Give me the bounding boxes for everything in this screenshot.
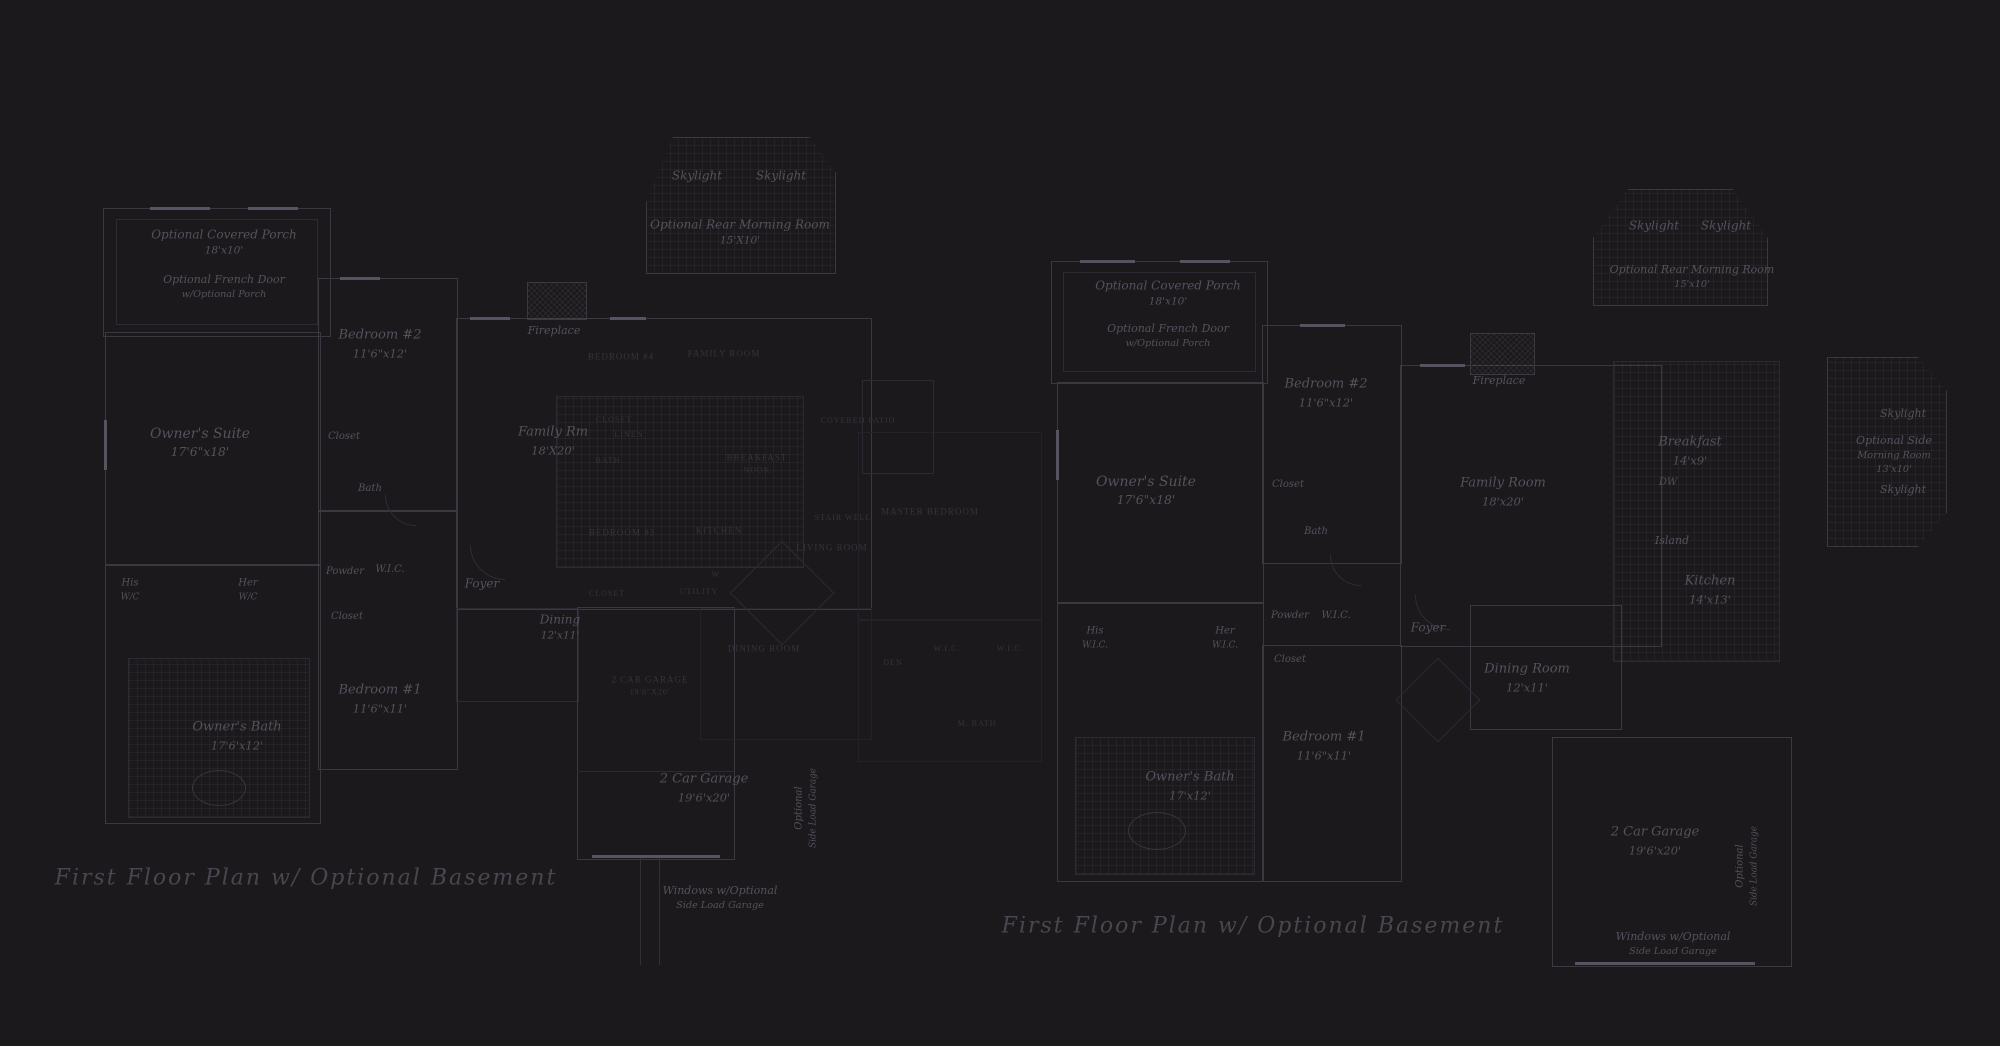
label-bedroom-1: Bedroom #111'6"x11' (338, 681, 421, 716)
label-ghost-family-room: FAMILY ROOM (688, 347, 761, 360)
label-island: Island (1655, 533, 1689, 549)
left-bedroom2-outline (318, 278, 458, 512)
label-skylight-a: Skylight (1629, 217, 1679, 234)
label-ghost-closet: CLOSET (596, 414, 632, 426)
right-garage-door-mark (1575, 962, 1755, 965)
label-dining: Dining12'x11' (540, 612, 580, 645)
label-windows-side-load: Windows w/OptionalSide Load Garage (1616, 929, 1731, 959)
label-skylight-a: Skylight (672, 167, 722, 184)
left-garage-door-mark (592, 855, 720, 858)
left-window-mark-2 (248, 207, 298, 210)
left-window-mark-5 (610, 317, 646, 320)
label-dining-room: Dining Room12'x11' (1484, 660, 1570, 695)
label-ghost-wic-b: W.I.C. (997, 643, 1024, 655)
label-foyer: Foyer (465, 575, 500, 592)
label-her-wc: HerW/C (238, 576, 257, 603)
label-french-door: Optional French Doorw/Optional Porch (1107, 321, 1229, 351)
label-ghost-den: DEN (883, 657, 902, 669)
label-kitchen: Kitchen14'x13' (1685, 572, 1736, 607)
label-owners-bath: Owner's Bath17'6'x12' (192, 718, 281, 753)
label-garage: 2 Car Garage19'6'x20' (660, 770, 749, 805)
label-side-morning-room: Optional SideMorning Room13'x10' (1856, 433, 1932, 477)
label-covered-porch: Optional Covered Porch18'x10' (151, 227, 297, 260)
label-fireplace: Fireplace (1473, 373, 1526, 389)
label-side-load-garage: OptionalSide Load Garage (1733, 826, 1760, 906)
left-window-mark-1 (150, 207, 210, 210)
label-dw: DW (1659, 476, 1677, 491)
right-bath-tile-floor (1075, 737, 1255, 875)
label-wic: W.I.C. (1321, 609, 1350, 624)
label-ghost-utility: UTILITY (680, 586, 719, 598)
label-rear-morning-room: Optional Rear Morning Room15'x10' (1610, 262, 1775, 292)
left-window-mark-4 (470, 317, 510, 320)
left-window-mark-3 (340, 277, 380, 280)
label-his-wc: HisW/C (121, 576, 140, 603)
right-plan-title: First Floor Plan w/ Optional Basement (1002, 914, 1505, 939)
label-ghost-dining-room: DINING ROOM (728, 642, 800, 655)
label-skylight-b: Skylight (756, 167, 806, 184)
left-plan-title: First Floor Plan w/ Optional Basement (55, 866, 558, 891)
label-ghost-closet-2: CLOSET (589, 588, 625, 600)
right-kitchen-tile-floor (1613, 361, 1780, 662)
right-window-mark-5 (1056, 430, 1059, 480)
label-ghost-bedroom-4: BEDROOM #4 (588, 350, 654, 363)
label-bath: Bath (1304, 525, 1328, 540)
left-rear-morning-room-bay (646, 137, 836, 274)
right-window-mark-3 (1300, 324, 1345, 327)
left-driveway-lines (640, 858, 660, 965)
label-powder: Powder (1271, 609, 1309, 624)
label-owners-suite: Owner's Suite17'6"x18' (150, 424, 250, 462)
label-covered-porch: Optional Covered Porch18'x10' (1095, 278, 1241, 311)
label-windows-side-load: Windows w/OptionalSide Load Garage (663, 883, 778, 913)
label-wic: W.I.C. (375, 563, 404, 578)
label-bedroom-2: Bedroom #211'6"x12' (1284, 375, 1367, 410)
label-ghost-linen: LINEN (615, 429, 644, 441)
label-fireplace: Fireplace (528, 323, 581, 339)
label-ghost-master-bedroom: MASTER BEDROOM (881, 505, 979, 518)
right-entry-bay-window (1396, 658, 1481, 743)
label-ghost-washer: W (712, 569, 721, 581)
label-bedroom-2: Bedroom #211'6"x12' (338, 326, 421, 361)
label-skylight-b: Skylight (1701, 217, 1751, 234)
label-ghost-living-room: LIVING ROOM (796, 541, 867, 554)
label-her-wic: HerW.I.C. (1212, 624, 1238, 651)
label-closet-bedroom-2: Closet (328, 430, 360, 445)
label-owners-suite: Owner's Suite17'6"x18' (1096, 472, 1196, 510)
left-ghost-master-wing-outline (858, 432, 1042, 620)
label-closet-hall: Closet (331, 610, 363, 625)
floor-plan-sheet: Skylight Skylight Optional Rear Morning … (0, 0, 2000, 1046)
left-kitchen-tile-floor (556, 396, 804, 568)
label-ghost-kitchen: KITCHEN (696, 524, 743, 537)
left-fireplace-box (527, 282, 587, 320)
label-foyer: Foyer (1411, 619, 1446, 636)
label-ghost-covered-patio: COVERED PATIO (821, 415, 896, 427)
left-bathtub (192, 770, 246, 806)
right-window-mark-4 (1420, 364, 1465, 367)
label-family-rm: Family Rm18'X20' (518, 423, 588, 458)
label-closet: Closet (1272, 478, 1304, 493)
left-bedroom1-outline (318, 510, 458, 770)
label-french-door: Optional French Doorw/Optional Porch (163, 272, 285, 302)
left-ghost-den-wing-outline (858, 620, 1042, 762)
label-ghost-bedroom-3: BEDROOM #3 (589, 526, 655, 539)
label-ghost-wic-a: W.I.C. (934, 643, 961, 655)
label-ghost-stair-well: STAIR WELL (815, 512, 872, 524)
right-fireplace-box (1470, 333, 1535, 375)
label-his-wic: HisW.I.C. (1082, 624, 1108, 651)
label-ghost-breakfast-nook: BREAKFASTNOOK (727, 452, 788, 477)
label-rear-morning-room: Optional Rear Morning Room15'X10' (650, 217, 830, 250)
label-bath: Bath (358, 482, 382, 497)
label-bedroom-1: Bedroom #111'6"x11' (1282, 728, 1365, 763)
right-bathtub (1128, 812, 1186, 850)
label-ghost-bath: BATH (596, 455, 621, 467)
label-garage: 2 Car Garage19'6'x20' (1611, 823, 1700, 858)
label-side-skylight-b: Skylight (1880, 482, 1926, 498)
left-window-mark-6 (104, 420, 107, 470)
right-bedroom-door-swing (1330, 555, 1361, 586)
label-powder: Powder (326, 565, 364, 580)
right-window-mark-1 (1080, 260, 1135, 263)
label-closet-hall: Closet (1274, 653, 1306, 668)
right-bedroom2-outline (1262, 325, 1402, 564)
label-ghost-garage: 2 CAR GARAGE19'6"X20' (611, 674, 688, 699)
label-owners-bath: Owner's Bath17'x12' (1145, 768, 1234, 803)
label-ghost-m-bath: M. BATH (957, 718, 996, 730)
label-breakfast: Breakfast14'x9' (1658, 433, 1722, 468)
label-side-skylight-a: Skylight (1880, 406, 1926, 422)
label-side-load-garage: OptionalSide Load Garage (792, 768, 819, 848)
label-family-room: Family Room18'x20' (1460, 474, 1546, 509)
right-window-mark-2 (1180, 260, 1230, 263)
